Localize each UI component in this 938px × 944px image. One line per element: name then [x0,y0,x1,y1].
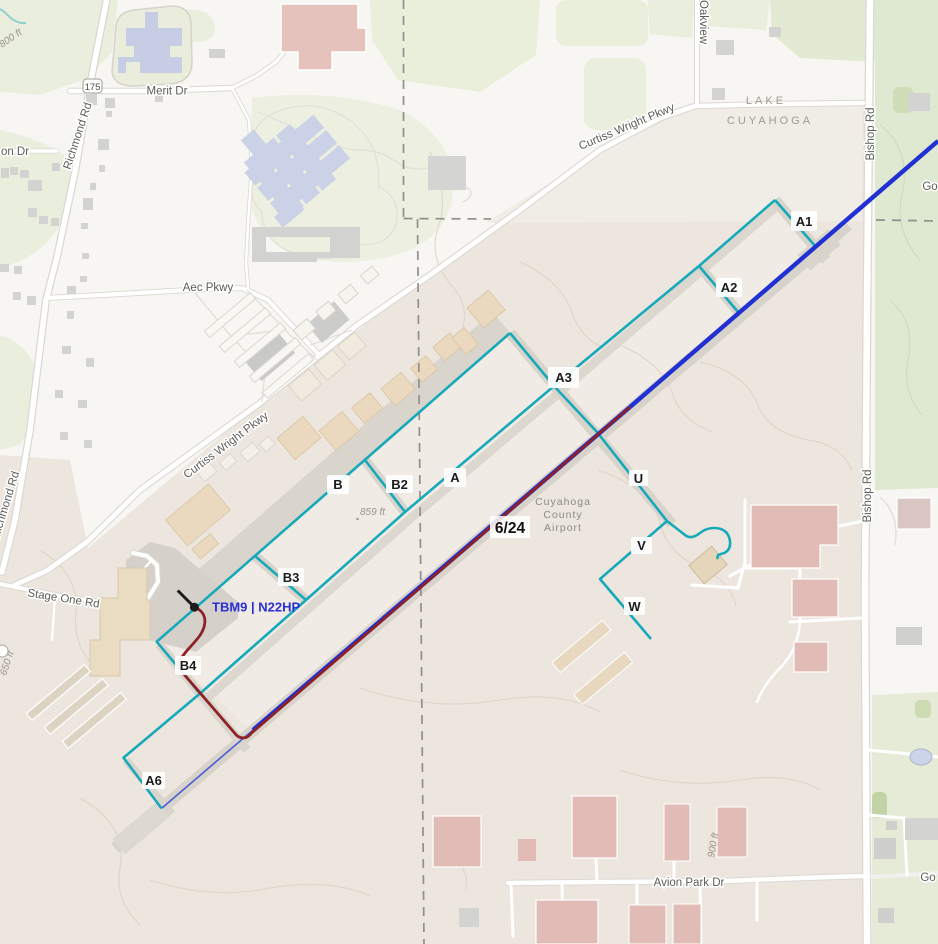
svg-text:Avion Park Dr: Avion Park Dr [654,877,725,889]
svg-text:V: V [637,538,646,553]
svg-text:LAKE: LAKE [746,95,786,107]
svg-text:A1: A1 [796,214,813,229]
svg-text:Airport: Airport [544,522,582,534]
svg-text:Bishop Rd: Bishop Rd [865,107,877,160]
svg-text:6/24: 6/24 [495,520,526,537]
svg-text:CUYAHOGA: CUYAHOGA [727,115,813,127]
svg-text:Merit Dr: Merit Dr [147,86,188,98]
svg-text:Go: Go [922,181,937,193]
svg-text:B: B [333,477,342,492]
svg-text:B2: B2 [391,477,408,492]
svg-text:A: A [450,470,460,485]
svg-text:on Dr: on Dr [1,146,29,158]
svg-text:A2: A2 [721,280,738,295]
svg-text:B3: B3 [283,570,300,585]
svg-text:A3: A3 [555,370,572,385]
svg-text:U: U [634,471,643,486]
svg-text:859 ft: 859 ft [360,507,386,518]
svg-text:Go: Go [920,872,935,884]
svg-text:TBM9 | N22HP: TBM9 | N22HP [212,600,300,615]
svg-text:B4: B4 [180,658,197,673]
svg-text:Oakview: Oakview [697,0,709,45]
svg-text:175: 175 [85,82,101,93]
svg-text:County: County [543,509,582,521]
svg-text:A6: A6 [145,773,162,788]
svg-text:Aec Pkwy: Aec Pkwy [183,282,234,294]
svg-text:W: W [628,599,641,614]
svg-text:Cuyahoga: Cuyahoga [535,496,591,508]
svg-text:Bishop Rd: Bishop Rd [862,469,874,522]
